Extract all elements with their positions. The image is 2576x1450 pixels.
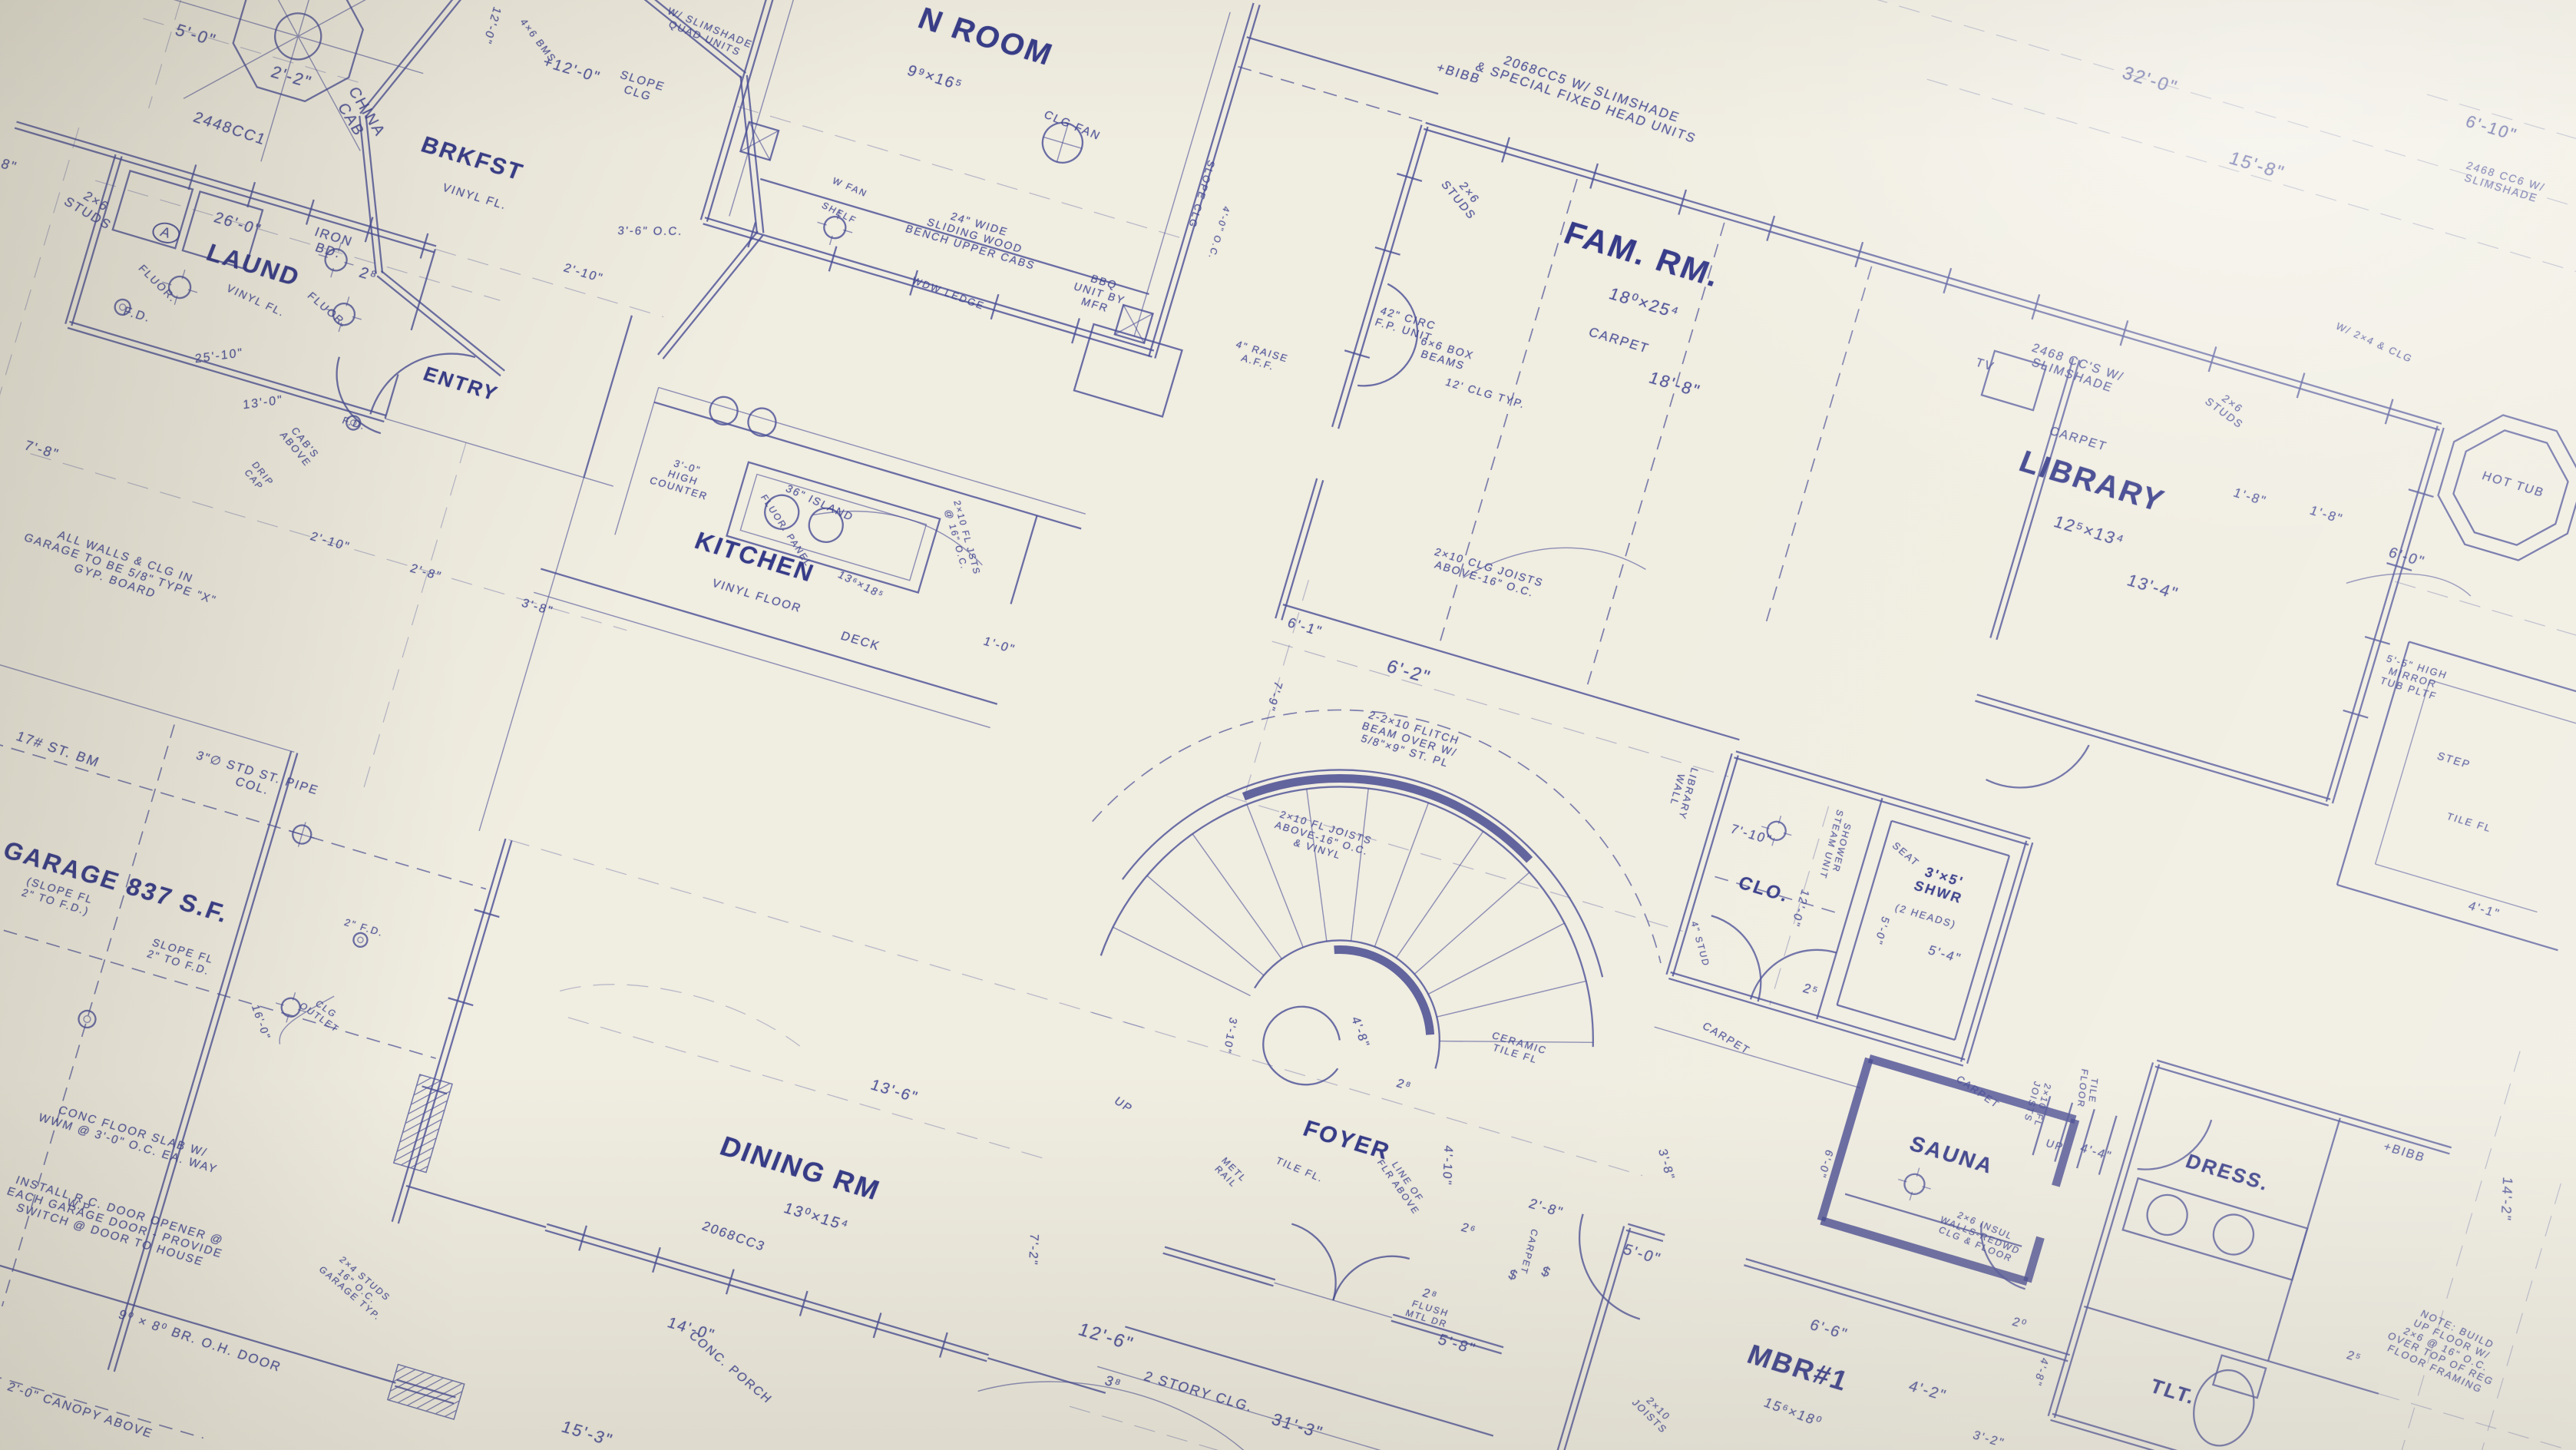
annotation-install-r-c-door-opener-ea: INSTALL R.C. DOOR OPENER @ EACH GARAGE D… xyxy=(0,1173,230,1273)
annotation-3-2: 3'-2" xyxy=(1970,1428,2006,1450)
annotation-3-6-o-c: 3'-6" O.C. xyxy=(617,224,684,238)
annotation-13-4: 13'-4" xyxy=(2125,571,2181,604)
annotation-9-8-br-o-h-door: 9⁰ × 8⁰ BR. O.H. DOOR xyxy=(116,1307,284,1375)
annotation-library: LIBRARY xyxy=(2014,445,2170,520)
annotation-2: 2⁵ xyxy=(2344,1349,2363,1366)
annotation-2-10-fl-joists-above-16-o-: 2×10 FL JOISTS ABOVE-16" O.C. & VINYL xyxy=(1269,809,1375,868)
annotation-7-8: 7'-8" xyxy=(22,438,62,462)
annotation-bbq-unit-by-mfr: BBQ UNIT BY MFR xyxy=(1067,269,1132,318)
annotation-brkfst: BRKFST xyxy=(417,132,527,187)
annotation-15-3: 15'-3" xyxy=(559,1417,616,1450)
annotation-shower-steam-unit: SHOWER STEAM UNIT xyxy=(1817,808,1855,884)
annotation-18-25: 18⁰×25⁴ xyxy=(1606,284,1682,323)
annotation-w-slimshade-quad-units: W/ SLIMSHADE QUAD UNITS xyxy=(660,6,755,61)
annotation-18-8: 18'-8" xyxy=(1646,368,1703,401)
annotation-26-0: 26'-0" xyxy=(211,209,264,239)
annotation-slope-clg: SLOPE CLG xyxy=(1185,158,1216,230)
annotation-laund: LAUND xyxy=(203,238,305,291)
annotation-shelf: SHELF xyxy=(819,200,858,226)
annotation-dress: DRESS. xyxy=(2182,1150,2273,1195)
annotation-8: 8" xyxy=(0,156,20,175)
annotation-up: UP xyxy=(1112,1094,1136,1115)
annotation-2: 2⁰ xyxy=(2010,1316,2029,1333)
annotation-metl-rail: METL RAIL xyxy=(1211,1156,1248,1191)
annotation-2-10-fl-joists: 2×10 FL JOISTS xyxy=(2022,1078,2052,1129)
annotation-2-6-insul-walls-redwd-clg-: 2×6 INSUL WALLS-REDWD CLG & FLOOR xyxy=(1933,1205,2027,1266)
annotation-4-8: 4'-8" xyxy=(1348,1015,1372,1049)
annotation-all-walls-clg-in-garage-to: ALL WALLS & CLG IN GARAGE TO BE 5/8" TYP… xyxy=(17,519,224,620)
annotation-25-10: 25'-10" xyxy=(195,346,244,367)
annotation-5-0: 5'-0" xyxy=(1872,915,1892,947)
annotation-2-story-clg: 2 STORY CLG. xyxy=(1142,1369,1256,1415)
annotation-3-8: 3'-8" xyxy=(519,597,555,619)
annotation-6-0: 6'-0" xyxy=(2386,545,2428,571)
annotation-mbr-1: MBR#1 xyxy=(1743,1338,1853,1397)
annotation-4-10: 4'-10" xyxy=(1439,1144,1454,1187)
annotation-entry: ENTRY xyxy=(420,362,501,406)
annotation-car-garage-837-s-f: CAR GARAGE 837 S.F. xyxy=(0,816,233,929)
annotation-5-0: 5'-0" xyxy=(1621,1241,1664,1268)
annotation-14-2: 14'-2" xyxy=(2498,1176,2515,1222)
annotation-2-10: 2'-10" xyxy=(308,530,352,555)
annotation-iron-bd: IRON BD. xyxy=(307,224,355,263)
annotation-conc-floor-slab-w-wwm-3-0-: CONC FLOOR SLAB W/ WWM @ 3'-0" O.C. EA. … xyxy=(36,1099,224,1177)
annotation-3: 3⁸ xyxy=(1103,1372,1124,1392)
annotation-13-6: 13'-6" xyxy=(868,1077,921,1107)
annotation-2-heads: (2 HEADS) xyxy=(1893,902,1958,931)
annotation-2-10-clg-joists-above-16-o: 2×10 CLG JOISTS ABOVE-16" O.C. xyxy=(1428,546,1546,601)
annotation-6-2: 6'-2" xyxy=(1384,656,1433,688)
annotation-n-room: N ROOM xyxy=(913,2,1058,74)
annotation-2068cc3: 2068CC3 xyxy=(699,1219,768,1254)
annotation-5-5-high-mirror-tub-pltf: 5'-5" HIGH MIRROR TUB PLTF xyxy=(2376,654,2449,703)
annotation-vinyl-floor: VINYL FLOOR xyxy=(710,577,804,615)
annotation-slope-clg: SLOPE CLG xyxy=(613,68,667,106)
annotation-foyer: FOYER xyxy=(1299,1116,1394,1166)
annotation-12-clg-typ: 12' CLG TYP. xyxy=(1443,376,1527,412)
annotation-32-0: 32'-0" xyxy=(2119,63,2181,98)
annotation-2-0-canopy-above: 2'-0" CANOPY ABOVE xyxy=(5,1381,154,1442)
annotation-vinyl-fl: VINYL FL. xyxy=(441,181,509,213)
annotation-3-5-shwr: 3'×5' SHWR xyxy=(1912,862,1971,906)
annotation-2-8: 2'-8" xyxy=(1526,1196,1566,1220)
annotation-layer: 5'-0"2'-2"2448CC1CHINA CABIRON BD.2×6 ST… xyxy=(0,0,2576,1450)
annotation-6-1: 6'-1" xyxy=(1285,614,1325,639)
annotation-2468-cc-s-w-slimshade: 2468 CC'S W/ SLIMSHADE xyxy=(2024,342,2126,398)
annotation-mark: $ xyxy=(1539,1263,1554,1281)
annotation-vinyl-fl: VINYL FL. xyxy=(224,283,288,319)
annotation-fluor: FLUOR. xyxy=(305,290,351,330)
annotation-mark: $ xyxy=(1506,1266,1521,1284)
annotation-a: A xyxy=(149,220,183,247)
annotation-2-2-10-flitch-beam-over-w-: 2-2×10 FLITCH BEAM OVER W/ 5/8"×9" ST. P… xyxy=(1355,709,1463,771)
annotation-tile-fl: TILE FL xyxy=(2445,811,2493,835)
annotation-17-st-bm: 17# ST. BM xyxy=(14,728,102,770)
annotation-4-6-bms: 4×6 BMS xyxy=(517,17,558,65)
annotation-2-8: 2'-8" xyxy=(408,562,444,584)
annotation-16-0: 16'-0" xyxy=(249,1004,273,1041)
annotation-31-3: 31'-3" xyxy=(1269,1409,1326,1442)
annotation-2068cc5-w-slimshade-specia: 2068CC5 W/ SLIMSHADE & SPECIAL FIXED HEA… xyxy=(1473,45,1705,146)
annotation-cab-s-above: CAB'S ABOVE xyxy=(277,423,322,468)
annotation-7-2: 7'-2" xyxy=(1025,1233,1040,1266)
annotation-12-6: 12'-6" xyxy=(1075,1319,1136,1355)
annotation-f-d: F.D. xyxy=(340,415,367,432)
annotation-seat: SEAT xyxy=(1890,840,1922,869)
annotation-deck: DECK xyxy=(838,630,882,654)
annotation-clg-fan: CLG FAN xyxy=(1042,108,1103,143)
annotation-hot-tub: HOT TUB xyxy=(2480,469,2547,501)
annotation-2-6-studs: 2×6 STUDS xyxy=(2202,386,2254,431)
annotation-tile-fl: TILE FL. xyxy=(1274,1155,1326,1184)
annotation-flush-mtl-dr: FLUSH MTL DR xyxy=(1404,1298,1453,1330)
annotation-note-build-up-floor-w-2-6-: NOTE: BUILD UP FLOOR W/ 2×6 @ 16" O.C. O… xyxy=(2379,1301,2512,1399)
annotation-clg-outlet: CLG OUTLET xyxy=(297,992,348,1035)
annotation-wdw-ledge: WDW LEDGE xyxy=(910,275,987,312)
annotation-ceramic-tile-fl: CERAMIC TILE FL xyxy=(1486,1030,1549,1068)
annotation-15-8: 15'-8" xyxy=(2226,148,2287,184)
annotation-5-4: 5'-4" xyxy=(1926,942,1963,966)
annotation-12-0: 12'-0" xyxy=(1788,887,1811,929)
annotation-tv: TV xyxy=(1973,356,1996,375)
annotation-library-wall: LIBRARY WALL xyxy=(1665,762,1699,821)
annotation-2: 2⁵ xyxy=(1801,981,1821,999)
annotation-carpet: CARPET xyxy=(1953,1074,2002,1111)
annotation-3-0-high-counter: 3'-0" HIGH COUNTER xyxy=(648,454,718,503)
annotation-2: 2⁸ xyxy=(356,264,380,286)
annotation-36-island: 36" ISLAND xyxy=(783,483,855,524)
annotation-w-fan: W FAN xyxy=(830,176,869,200)
annotation-3-8: 3'-8" xyxy=(1655,1148,1677,1182)
annotation-2-10: 2'-10" xyxy=(561,262,605,286)
annotation-2-2: 2'-2" xyxy=(268,62,315,92)
annotation-dining-rm: DINING RM xyxy=(716,1130,885,1206)
annotation-12-13: 12⁵×13⁴ xyxy=(2051,511,2128,550)
annotation-13-15: 13⁰×15⁴ xyxy=(781,1200,852,1235)
annotation-1-8: 1'-8" xyxy=(2307,503,2345,527)
annotation-w-2-4-clg: W/ 2×4 & CLG xyxy=(2333,321,2415,366)
annotation-5-8: 5'-8" xyxy=(1435,1331,1478,1358)
blueprint-photo: 5'-0"2'-2"2448CC1CHINA CABIRON BD.2×6 ST… xyxy=(0,0,2576,1450)
annotation-12-0: 12'-0" xyxy=(480,5,503,46)
annotation-15-18: 15⁶×18⁰ xyxy=(1761,1395,1825,1430)
annotation-carpet: CARPET xyxy=(1700,1020,1753,1057)
annotation-7-9: 7'-9" xyxy=(1264,680,1285,714)
annotation-fluor: FLUOR. xyxy=(135,263,179,305)
annotation-drip-cap: DRIP CAP xyxy=(240,460,276,494)
annotation-2468-cc6-w-slimshade: 2468 CC6 W/ SLIMSHADE xyxy=(2460,160,2547,206)
annotation-2: 2⁶ xyxy=(1459,1221,1478,1239)
annotation-f-d: F.D. xyxy=(121,305,154,326)
annotation-carpet: CARPET xyxy=(1586,325,1652,356)
annotation-6-6: 6'-6" xyxy=(1807,1316,1850,1343)
annotation-2: 2⁸ xyxy=(1394,1077,1414,1094)
annotation-2-6-studs: 2×6 STUDS xyxy=(61,182,123,233)
annotation-china-cab: CHINA CAB xyxy=(329,84,389,147)
annotation-6-6-box-beams: 6×6 BOX BEAMS xyxy=(1414,336,1476,374)
annotation-3-10: 3'-10" xyxy=(1221,1016,1239,1055)
annotation-6-10: 6'-10" xyxy=(2463,111,2520,144)
annotation-4-2: 4'-2" xyxy=(1906,1378,1949,1405)
annotation-4-4: 4'-4" xyxy=(2078,1142,2114,1164)
annotation-13-18: 13⁶×18⁵ xyxy=(835,569,886,602)
annotation-carpet: CARPET xyxy=(2047,425,2108,455)
annotation-sauna: SAUNA xyxy=(1906,1131,1998,1179)
annotation-2-6-studs: 2×6 STUDS xyxy=(1438,171,1490,222)
annotation-tile-floor: TILE FLOOR xyxy=(2075,1068,2100,1111)
annotation-3-std-st-pipe-col: 3"∅ STD ST. PIPE COL. xyxy=(189,750,321,812)
annotation-1-8: 1'-8" xyxy=(2231,485,2269,509)
annotation-9-16: 9⁹×16⁵ xyxy=(904,62,965,94)
annotation-tlt: TLT. xyxy=(2147,1375,2199,1409)
annotation-13-0: 13'-0" xyxy=(243,393,283,412)
annotation-up: UP xyxy=(2044,1137,2065,1154)
annotation-4-stud: 4" STUD xyxy=(1688,921,1711,968)
annotation-2448cc1: 2448CC1 xyxy=(190,109,270,149)
annotation-step: STEP xyxy=(2435,750,2473,772)
annotation-slope-fl-2-to-f-d: SLOPE FL 2" TO F.D. xyxy=(145,936,217,978)
annotation-clo: CLO. xyxy=(1735,872,1793,907)
annotation-2-10-joists: 2×10 JOISTS xyxy=(1629,1390,1678,1436)
annotation-2-4-studs-16-o-c-garage-ty: 2×4 STUDS 16" O.C. GARAGE TYP. xyxy=(316,1250,398,1323)
annotation-4-1: 4'-1" xyxy=(2466,899,2502,922)
blueprint-plan-sheet: 5'-0"2'-2"2448CC1CHINA CABIRON BD.2×6 ST… xyxy=(0,0,2576,1450)
annotation-2-f-d: 2" F.D. xyxy=(342,917,385,939)
annotation-5-0: 5'-0" xyxy=(173,20,220,50)
annotation-4-0-o-c: 4'-0" O.C. xyxy=(1205,204,1231,261)
annotation-24-wide-sliding-wood-bench: 24" WIDE SLIDING WOOD BENCH UPPER CABS xyxy=(904,200,1047,272)
annotation-2-10-fl-jsts-16-o-c: 2×10 FL JSTS @ 16" O.C. xyxy=(941,500,982,578)
annotation-7-10: 7'-10" xyxy=(1728,822,1774,848)
annotation-6-0: 6'-0" xyxy=(1815,1148,1835,1180)
annotation-bibb: +BIBB xyxy=(2381,1140,2427,1166)
annotation-fam-rm: FAM. RM. xyxy=(1559,214,1727,294)
annotation-4-raise-a-f-f: 4" RAISE A.F.F. xyxy=(1230,339,1290,376)
annotation-1-0: 1'-0" xyxy=(981,635,1017,657)
annotation-4-8: 4'-8" xyxy=(2031,1356,2051,1388)
